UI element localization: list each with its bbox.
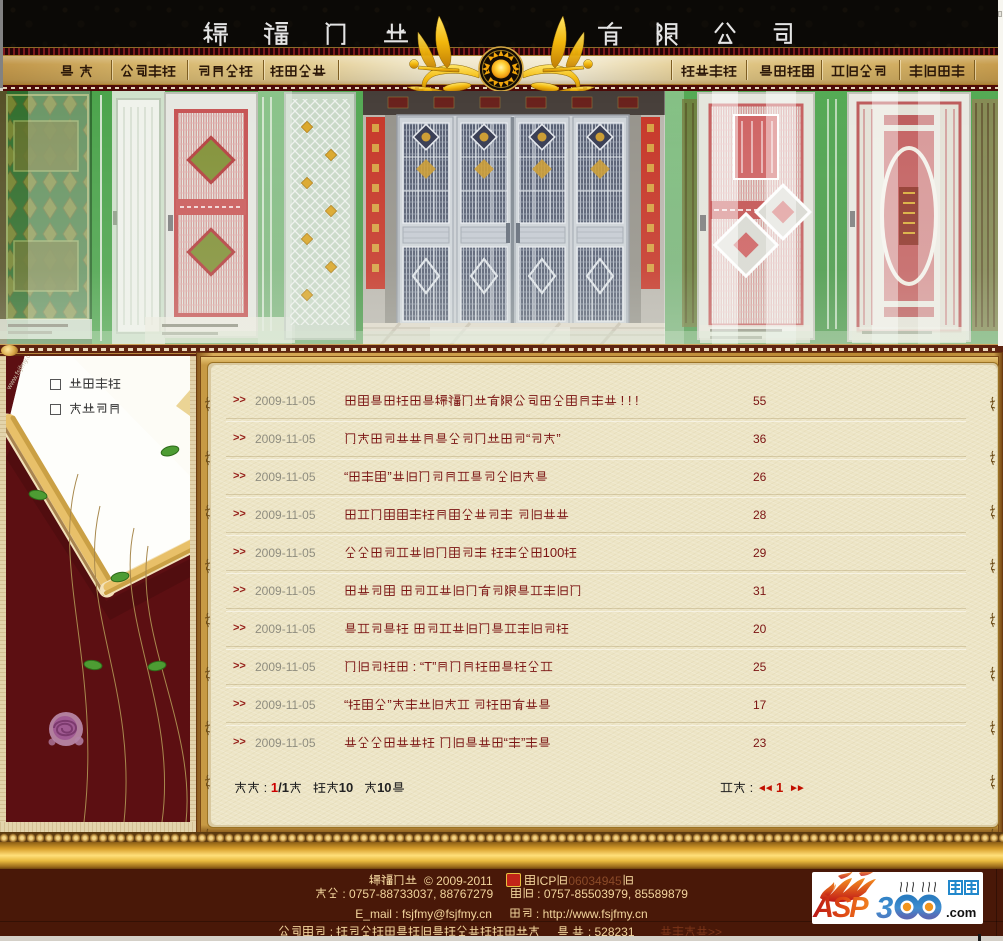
svg-text:.com: .com (946, 905, 976, 920)
svg-text:3: 3 (876, 890, 893, 924)
svg-text:ASP: ASP (812, 892, 869, 924)
